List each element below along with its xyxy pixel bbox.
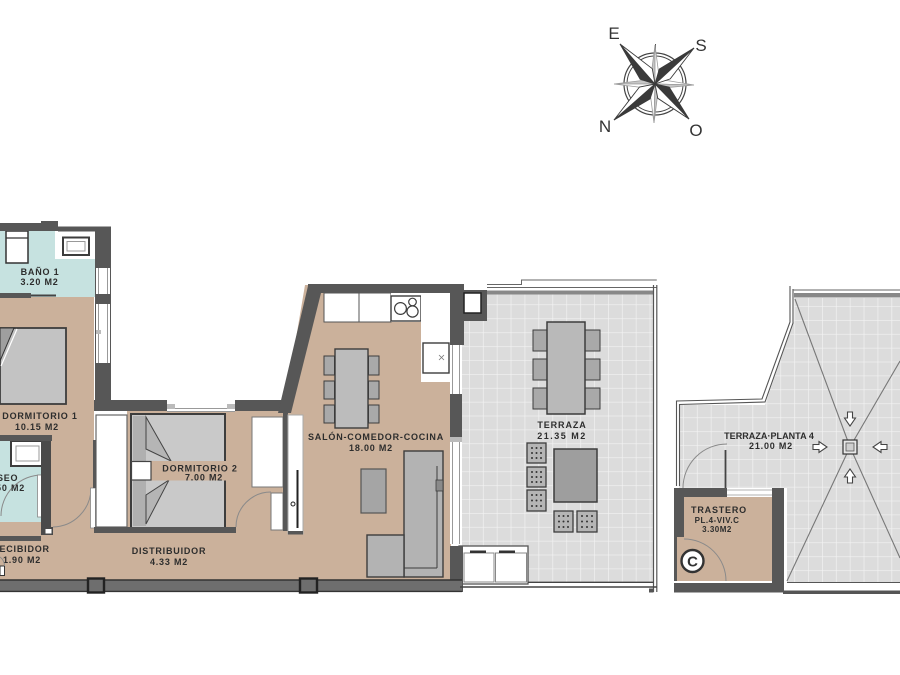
svg-text:PL.4-VIV.C: PL.4-VIV.C [695, 516, 740, 525]
svg-text:O: O [689, 121, 702, 140]
svg-text:C: C [687, 554, 698, 571]
svg-text:21.35 M2: 21.35 M2 [537, 431, 587, 441]
svg-text:ASEO: ASEO [0, 473, 18, 483]
svg-text:N: N [599, 117, 611, 136]
svg-text:S: S [695, 36, 706, 55]
svg-text:18.00 M2: 18.00 M2 [349, 443, 393, 453]
svg-text:TRASTERO: TRASTERO [691, 505, 747, 515]
svg-text:1.90 M2: 1.90 M2 [3, 555, 41, 565]
svg-text:TERRAZA·PLANTA 4: TERRAZA·PLANTA 4 [724, 431, 814, 441]
svg-text:SALÓN-COMEDOR-COCINA: SALÓN-COMEDOR-COCINA [308, 431, 444, 442]
svg-text:E: E [608, 24, 619, 43]
svg-text:4.33 M2: 4.33 M2 [150, 557, 188, 567]
svg-text:1.50 M2: 1.50 M2 [0, 483, 25, 493]
svg-text:DISTRIBUIDOR: DISTRIBUIDOR [132, 546, 207, 556]
svg-text:RECIBIDOR: RECIBIDOR [0, 544, 50, 554]
svg-text:10.15 M2: 10.15 M2 [15, 422, 59, 432]
svg-text:21.00 M2: 21.00 M2 [749, 441, 793, 451]
svg-text:7.00 M2: 7.00 M2 [185, 473, 223, 483]
svg-text:3.30M2: 3.30M2 [702, 525, 732, 534]
svg-text:DORMITORIO 1: DORMITORIO 1 [2, 411, 77, 421]
svg-text:BAÑO 1: BAÑO 1 [21, 267, 60, 277]
svg-text:3.20 M2: 3.20 M2 [20, 277, 58, 287]
svg-text:TERRAZA: TERRAZA [537, 420, 586, 430]
